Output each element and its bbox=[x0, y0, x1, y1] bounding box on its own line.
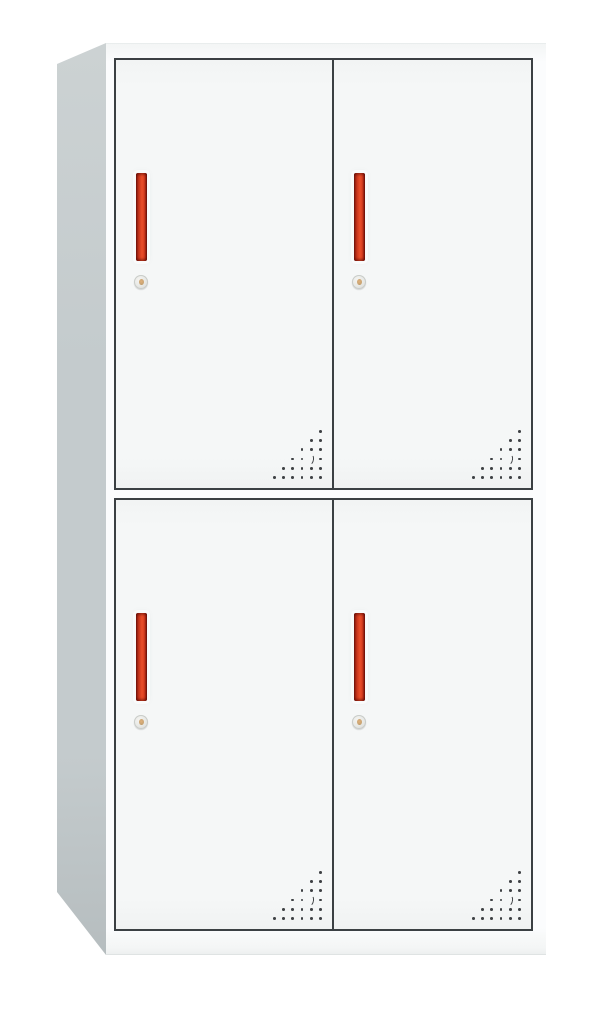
vent-dot bbox=[282, 908, 285, 911]
vent-perforations bbox=[271, 430, 322, 480]
door-handle bbox=[354, 173, 365, 261]
vent-dot bbox=[301, 889, 304, 892]
cabinet-front-face bbox=[106, 43, 546, 955]
vent-dot bbox=[518, 917, 521, 920]
vent-dot bbox=[319, 458, 322, 461]
door-handle bbox=[136, 613, 147, 701]
door-handle bbox=[354, 613, 365, 701]
vent-dot bbox=[310, 908, 313, 911]
vent-dot bbox=[291, 458, 294, 461]
vent-dot bbox=[319, 871, 322, 874]
vent-dot bbox=[500, 917, 503, 920]
vent-dot bbox=[291, 899, 294, 902]
vent-dot bbox=[273, 476, 276, 479]
vent-dot bbox=[490, 908, 493, 911]
keyhole-lock bbox=[352, 715, 366, 729]
vent-crescent-icon bbox=[306, 895, 315, 907]
keyhole-lock bbox=[134, 275, 148, 289]
vent-dot bbox=[509, 880, 512, 883]
vent-dot bbox=[291, 917, 294, 920]
vent-dot bbox=[310, 467, 313, 470]
vent-dot bbox=[490, 899, 493, 902]
vent-dot bbox=[490, 458, 493, 461]
vent-dot bbox=[481, 917, 484, 920]
vent-dot bbox=[310, 889, 313, 892]
vent-perforations bbox=[271, 871, 322, 921]
vent-dot bbox=[319, 880, 322, 883]
vent-dot bbox=[518, 908, 521, 911]
base-plinth bbox=[106, 933, 546, 955]
vent-dot bbox=[282, 476, 285, 479]
vent-dot bbox=[291, 908, 294, 911]
vent-dot bbox=[490, 467, 493, 470]
vent-dot bbox=[319, 476, 322, 479]
vent-dot bbox=[518, 467, 521, 470]
door-top-left bbox=[114, 58, 334, 490]
vent-dot bbox=[509, 476, 512, 479]
vent-dot bbox=[301, 448, 304, 451]
vent-perforations bbox=[470, 871, 521, 921]
vent-dot bbox=[509, 908, 512, 911]
locker-cabinet bbox=[0, 0, 605, 1009]
cabinet-side-panel bbox=[57, 43, 106, 955]
door-handle bbox=[136, 173, 147, 261]
vent-dot bbox=[310, 880, 313, 883]
vent-dot bbox=[319, 899, 322, 902]
keyhole-lock bbox=[134, 715, 148, 729]
vent-dot bbox=[291, 476, 294, 479]
vent-dot bbox=[500, 448, 503, 451]
door-top-right bbox=[332, 58, 533, 490]
vent-dot bbox=[518, 448, 521, 451]
vent-dot bbox=[319, 889, 322, 892]
locker-product-photo bbox=[0, 0, 605, 1009]
vent-dot bbox=[481, 476, 484, 479]
vent-dot bbox=[282, 917, 285, 920]
vent-dot bbox=[509, 448, 512, 451]
vent-dot bbox=[500, 476, 503, 479]
vent-dot bbox=[518, 880, 521, 883]
vent-dot bbox=[500, 908, 503, 911]
vent-dot bbox=[310, 476, 313, 479]
vent-perforations bbox=[470, 430, 521, 480]
vent-dot bbox=[301, 899, 304, 902]
vent-dot bbox=[310, 917, 313, 920]
vent-crescent-icon bbox=[306, 454, 315, 466]
door-bottom-right bbox=[332, 498, 533, 931]
vent-dot bbox=[319, 439, 322, 442]
vent-dot bbox=[319, 467, 322, 470]
vent-dot bbox=[500, 458, 503, 461]
vent-dot bbox=[518, 430, 521, 433]
vent-dot bbox=[291, 467, 294, 470]
vent-dot bbox=[490, 476, 493, 479]
vent-dot bbox=[319, 908, 322, 911]
vent-dot bbox=[509, 439, 512, 442]
vent-dot bbox=[481, 467, 484, 470]
vent-dot bbox=[518, 476, 521, 479]
vent-dot bbox=[319, 917, 322, 920]
vent-dot bbox=[500, 467, 503, 470]
vent-dot bbox=[301, 467, 304, 470]
keyhole-lock bbox=[352, 275, 366, 289]
vent-dot bbox=[509, 917, 512, 920]
vent-dot bbox=[472, 917, 475, 920]
vent-crescent-icon bbox=[505, 454, 514, 466]
vent-dot bbox=[518, 458, 521, 461]
vent-dot bbox=[273, 917, 276, 920]
vent-dot bbox=[481, 908, 484, 911]
vent-crescent-icon bbox=[505, 895, 514, 907]
vent-dot bbox=[319, 448, 322, 451]
vent-dot bbox=[490, 917, 493, 920]
vent-dot bbox=[310, 448, 313, 451]
vent-dot bbox=[518, 889, 521, 892]
vent-dot bbox=[518, 899, 521, 902]
vent-dot bbox=[301, 917, 304, 920]
vent-dot bbox=[472, 476, 475, 479]
vent-dot bbox=[500, 899, 503, 902]
vent-dot bbox=[301, 908, 304, 911]
vent-dot bbox=[518, 439, 521, 442]
vent-dot bbox=[310, 439, 313, 442]
vent-dot bbox=[518, 871, 521, 874]
vent-dot bbox=[301, 476, 304, 479]
door-bottom-left bbox=[114, 498, 334, 931]
vent-dot bbox=[319, 430, 322, 433]
vent-dot bbox=[500, 889, 503, 892]
vent-dot bbox=[282, 467, 285, 470]
vent-dot bbox=[301, 458, 304, 461]
vent-dot bbox=[509, 889, 512, 892]
vent-dot bbox=[509, 467, 512, 470]
